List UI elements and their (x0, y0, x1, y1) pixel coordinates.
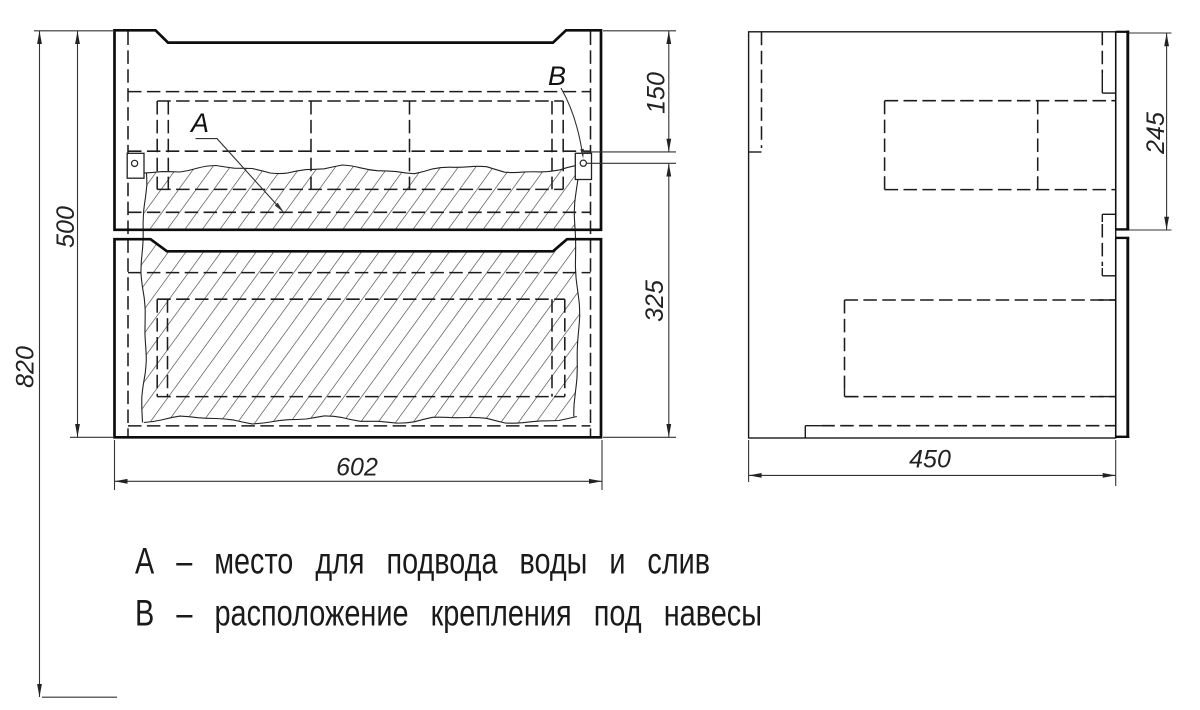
svg-text:820: 820 (12, 346, 40, 388)
svg-text:B: B (548, 61, 566, 91)
svg-text:500: 500 (52, 206, 80, 248)
svg-text:В – расположение крепления под: В – расположение крепления под навесы (135, 593, 762, 634)
svg-text:602: 602 (336, 454, 378, 482)
svg-text:450: 450 (909, 446, 951, 474)
svg-text:150: 150 (643, 72, 671, 114)
svg-text:А – место для подвода воды и с: А – место для подвода воды и слив (135, 541, 710, 582)
svg-text:A: A (189, 108, 209, 138)
svg-text:245: 245 (1142, 112, 1170, 155)
svg-text:325: 325 (641, 280, 669, 322)
